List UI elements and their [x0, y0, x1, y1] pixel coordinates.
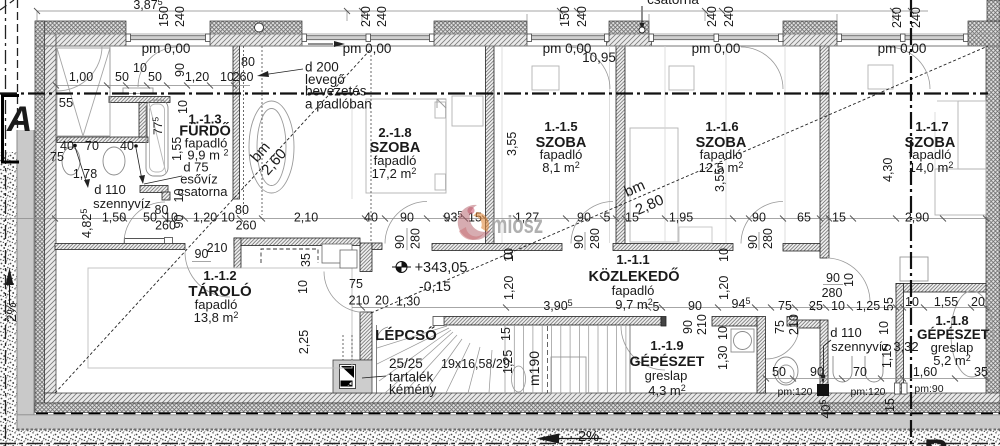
svg-text:1,55: 1,55	[170, 137, 184, 161]
svg-text:GÉPÉSZET: GÉPÉSZET	[630, 353, 705, 369]
svg-text:miosz: miosz	[491, 211, 543, 239]
svg-text:65: 65	[797, 211, 811, 225]
svg-text:90: 90	[688, 299, 702, 313]
svg-text:40: 40	[364, 211, 378, 225]
svg-text:1,00: 1,00	[69, 70, 93, 84]
svg-text:20: 20	[971, 295, 985, 309]
svg-text:10: 10	[717, 248, 731, 262]
svg-text:75: 75	[773, 320, 787, 334]
svg-text:19x16,58/29: 19x16,58/29	[441, 357, 510, 371]
svg-text:8,1 m2: 8,1 m2	[542, 160, 580, 175]
svg-text:1.-1.2: 1.-1.2	[203, 268, 236, 283]
svg-text:1,20: 1,20	[502, 276, 516, 300]
svg-text:20: 20	[375, 294, 389, 308]
svg-text:3,55: 3,55	[713, 168, 727, 192]
svg-text:10: 10	[172, 189, 186, 203]
svg-text:2%: 2%	[578, 429, 599, 445]
svg-text:75: 75	[349, 277, 363, 291]
svg-text:90: 90	[172, 215, 186, 229]
svg-text:kémény: kémény	[389, 382, 437, 397]
svg-text:2%: 2%	[4, 302, 19, 322]
svg-text:10: 10	[221, 211, 235, 225]
svg-text:1.-1.5: 1.-1.5	[544, 119, 577, 134]
svg-text:1,50: 1,50	[102, 211, 126, 225]
svg-text:1.-1.8: 1.-1.8	[935, 313, 968, 328]
svg-text:1.-1.7: 1.-1.7	[915, 119, 948, 134]
svg-text:50: 50	[148, 70, 162, 84]
svg-text:210: 210	[695, 314, 709, 335]
svg-text:a padlóban: a padlóban	[305, 97, 372, 112]
svg-text:280: 280	[822, 286, 843, 300]
svg-text:150: 150	[157, 6, 171, 27]
svg-text:55: 55	[882, 297, 896, 311]
svg-text:pm:120: pm:120	[777, 386, 812, 398]
svg-text:17,2 m2: 17,2 m2	[372, 166, 417, 181]
svg-text:pm:120: pm:120	[850, 386, 885, 398]
svg-text:1,30: 1,30	[716, 346, 730, 370]
svg-text:10: 10	[716, 326, 730, 340]
svg-text:15: 15	[499, 327, 513, 341]
svg-text:B: B	[924, 433, 949, 446]
svg-text:1,78: 1,78	[73, 167, 97, 181]
svg-text:3,32: 3,32	[893, 339, 918, 354]
svg-text:25: 25	[809, 299, 823, 313]
svg-text:1.-1.1: 1.-1.1	[616, 252, 649, 267]
svg-text:240: 240	[909, 7, 923, 28]
svg-text:280: 280	[588, 228, 602, 249]
svg-text:4,3 m2: 4,3 m2	[648, 383, 686, 398]
svg-text:10: 10	[502, 248, 516, 262]
svg-text:d 110: d 110	[830, 325, 862, 340]
svg-text:90: 90	[810, 365, 824, 379]
svg-text:1.-1.6: 1.-1.6	[705, 119, 738, 134]
svg-text:70: 70	[85, 139, 99, 153]
svg-text:+343,05: +343,05	[415, 260, 468, 276]
svg-text:210: 210	[207, 241, 228, 255]
svg-text:240: 240	[575, 6, 589, 27]
svg-text:90: 90	[681, 320, 695, 334]
svg-text:2,10: 2,10	[294, 211, 318, 225]
svg-text:1,25: 1,25	[501, 350, 515, 374]
svg-text:210: 210	[349, 294, 370, 308]
svg-text:pm 0,00: pm 0,00	[343, 41, 392, 56]
svg-text:75: 75	[778, 299, 792, 313]
svg-text:9,7 m2: 9,7 m2	[615, 297, 653, 312]
svg-text:35: 35	[974, 365, 988, 379]
svg-text:280: 280	[761, 228, 775, 249]
svg-text:35: 35	[299, 253, 313, 267]
svg-text:1.-1.9: 1.-1.9	[650, 338, 683, 353]
svg-text:1,20: 1,20	[185, 70, 209, 84]
svg-text:55: 55	[59, 95, 73, 110]
svg-text:90: 90	[572, 235, 586, 249]
svg-text:50: 50	[115, 70, 129, 84]
svg-text:5: 5	[604, 211, 611, 225]
svg-text:240: 240	[173, 6, 187, 27]
svg-text:40: 40	[120, 139, 134, 153]
svg-text:10: 10	[905, 295, 919, 309]
svg-text:10: 10	[831, 299, 845, 313]
svg-text:pm 0,00: pm 0,00	[878, 41, 927, 56]
svg-text:10: 10	[296, 280, 310, 294]
svg-text:15: 15	[832, 211, 846, 225]
svg-text:LÉPCSŐ: LÉPCSŐ	[375, 326, 437, 344]
svg-text:80: 80	[155, 203, 169, 217]
svg-text:80: 80	[235, 203, 249, 217]
svg-text:10,95: 10,95	[582, 50, 616, 65]
svg-text:280: 280	[409, 228, 423, 249]
svg-text:240: 240	[890, 7, 904, 28]
svg-text:4,30: 4,30	[881, 158, 895, 182]
svg-text:90: 90	[577, 211, 591, 225]
svg-text:1,20: 1,20	[193, 211, 217, 225]
svg-text:2.-1.8: 2.-1.8	[378, 125, 411, 140]
svg-text:3,55: 3,55	[505, 132, 519, 156]
svg-text:szennyvíz: szennyvíz	[93, 196, 151, 211]
svg-text:pm:90: pm:90	[914, 383, 943, 395]
svg-text:90: 90	[752, 211, 766, 225]
svg-text:240: 240	[722, 6, 736, 27]
svg-text:240: 240	[375, 6, 389, 27]
svg-text:pm 0,00: pm 0,00	[692, 41, 741, 56]
svg-text:fapadló: fapadló	[612, 283, 655, 298]
svg-text:13,8 m2: 13,8 m2	[194, 310, 239, 325]
svg-text:pm 0,00: pm 0,00	[142, 41, 191, 56]
svg-text:d 110: d 110	[94, 182, 126, 197]
svg-text:210: 210	[787, 314, 801, 335]
svg-text:80: 80	[241, 55, 255, 69]
svg-text:240: 240	[359, 6, 373, 27]
svg-text:150: 150	[558, 6, 572, 27]
svg-text:5: 5	[653, 300, 660, 314]
svg-text:240: 240	[705, 6, 719, 27]
svg-text:90: 90	[393, 235, 407, 249]
svg-text:A: A	[6, 100, 32, 139]
svg-text:70: 70	[853, 365, 867, 379]
svg-text:1,25: 1,25	[856, 299, 880, 313]
svg-text:75: 75	[50, 150, 64, 164]
svg-text:csatorna: csatorna	[647, 0, 699, 7]
svg-text:90: 90	[400, 211, 414, 225]
svg-text:90: 90	[826, 271, 840, 285]
svg-text:10: 10	[133, 61, 147, 75]
svg-text:1,15: 1,15	[880, 344, 894, 368]
svg-text:50: 50	[772, 365, 786, 379]
svg-text:greslap: greslap	[645, 368, 688, 383]
svg-text:5,2 m2: 5,2 m2	[933, 353, 971, 368]
svg-text:260: 260	[236, 219, 257, 233]
svg-text:1,55: 1,55	[934, 295, 958, 309]
svg-text:1,30: 1,30	[396, 295, 420, 309]
svg-text:2,90: 2,90	[905, 211, 929, 225]
svg-text:m190: m190	[526, 351, 542, 386]
svg-text:1,95: 1,95	[669, 211, 693, 225]
svg-text:2,25: 2,25	[297, 330, 311, 354]
svg-text:10: 10	[842, 273, 856, 287]
svg-text:260: 260	[233, 70, 254, 84]
svg-text:10: 10	[877, 321, 891, 335]
svg-text:-0,15: -0,15	[419, 278, 451, 294]
svg-text:90: 90	[746, 235, 760, 249]
svg-text:1,20: 1,20	[717, 276, 731, 300]
svg-text:15: 15	[883, 398, 897, 412]
svg-text:14,0 m2: 14,0 m2	[909, 160, 954, 175]
